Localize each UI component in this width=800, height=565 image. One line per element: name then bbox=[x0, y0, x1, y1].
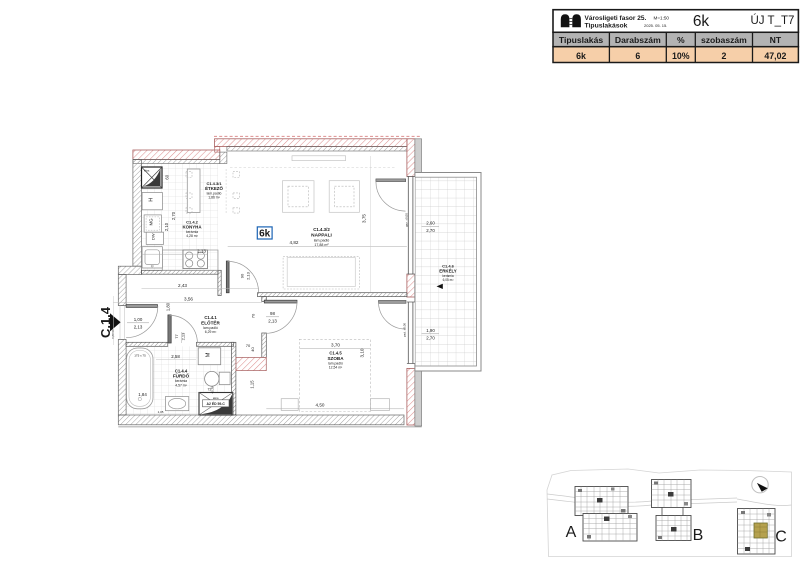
svg-text:4,28 m²: 4,28 m² bbox=[186, 234, 198, 238]
svg-text:2,43: 2,43 bbox=[178, 283, 187, 288]
svg-text:3,10: 3,10 bbox=[360, 348, 365, 357]
svg-text:elsz.: elsz. bbox=[144, 169, 150, 173]
svg-text:gsz. ±0,00: gsz. ±0,00 bbox=[405, 213, 409, 227]
svg-text:40,38: 40,38 bbox=[211, 386, 215, 393]
svg-text:2025. 05. 15.: 2025. 05. 15. bbox=[644, 23, 667, 28]
svg-text:4,82: 4,82 bbox=[290, 240, 299, 245]
svg-text:1,05: 1,05 bbox=[158, 410, 164, 414]
svg-text:175 x 75: 175 x 75 bbox=[134, 354, 146, 358]
svg-text:3,56: 3,56 bbox=[184, 297, 193, 302]
svg-text:6: 6 bbox=[635, 51, 640, 61]
svg-text:1,84: 1,84 bbox=[138, 392, 147, 397]
svg-text:C1.4.3/2: C1.4.3/2 bbox=[313, 227, 330, 232]
svg-text:Darabszám: Darabszám bbox=[615, 35, 661, 45]
svg-text:szobaszám: szobaszám bbox=[701, 35, 747, 45]
svg-text:4,57 m²: 4,57 m² bbox=[175, 383, 187, 387]
svg-text:3,70: 3,70 bbox=[331, 342, 340, 347]
svg-text:2,70: 2,70 bbox=[426, 228, 435, 233]
svg-text:Tipuslakások: Tipuslakások bbox=[585, 23, 628, 30]
svg-text:DW: DW bbox=[151, 233, 156, 240]
svg-text:2,10: 2,10 bbox=[164, 222, 169, 231]
svg-text:12,54 m²: 12,54 m² bbox=[329, 366, 343, 370]
svg-text:Tipuslakás: Tipuslakás bbox=[559, 35, 603, 45]
svg-text:40: 40 bbox=[250, 347, 255, 352]
svg-text:2,70: 2,70 bbox=[171, 211, 176, 220]
svg-text:2,13: 2,13 bbox=[134, 324, 143, 329]
svg-text:M=1:50: M=1:50 bbox=[654, 15, 670, 20]
svg-text:H: H bbox=[149, 198, 155, 202]
svg-text:A: A bbox=[566, 524, 577, 541]
svg-text:ERKÉLY: ERKÉLY bbox=[439, 269, 456, 274]
svg-text:pad. ±0,00: pad. ±0,00 bbox=[403, 323, 407, 337]
svg-text:C: C bbox=[775, 529, 787, 546]
svg-text:C1.4.1: C1.4.1 bbox=[204, 315, 217, 320]
svg-text:2,60: 2,60 bbox=[426, 220, 435, 225]
svg-text:M: M bbox=[206, 352, 212, 357]
svg-text:A2 ÉD 59-C: A2 ÉD 59-C bbox=[207, 401, 226, 406]
svg-text:4,50: 4,50 bbox=[316, 402, 325, 407]
svg-text:3,75: 3,75 bbox=[361, 214, 366, 223]
svg-text:2,13: 2,13 bbox=[181, 332, 186, 341]
svg-text:akna: akna bbox=[213, 396, 219, 400]
svg-text:10%: 10% bbox=[672, 51, 690, 61]
svg-text:MG: MG bbox=[149, 218, 154, 226]
svg-text:6k: 6k bbox=[576, 51, 586, 61]
svg-text:77: 77 bbox=[174, 334, 179, 339]
svg-text:NT: NT bbox=[770, 35, 782, 45]
svg-text:47,02: 47,02 bbox=[764, 51, 786, 61]
svg-text:70: 70 bbox=[246, 343, 251, 348]
svg-text:ÉTKEZŐ: ÉTKEZŐ bbox=[205, 186, 223, 191]
svg-text:6k: 6k bbox=[259, 229, 271, 240]
svg-text:lam.padló: lam.padló bbox=[314, 239, 330, 243]
svg-text:2,70: 2,70 bbox=[426, 335, 435, 340]
svg-text:1,90: 1,90 bbox=[426, 328, 435, 333]
svg-text:ÚJ T_T7: ÚJ T_T7 bbox=[751, 14, 795, 27]
svg-text:SZOBA: SZOBA bbox=[327, 356, 344, 361]
svg-text:2,13: 2,13 bbox=[246, 271, 251, 280]
svg-text:1,15: 1,15 bbox=[250, 380, 255, 389]
svg-text:60: 60 bbox=[165, 174, 170, 179]
svg-text:1,00: 1,00 bbox=[134, 317, 143, 322]
svg-text:2,13: 2,13 bbox=[268, 318, 277, 323]
svg-text:2,58: 2,58 bbox=[171, 354, 180, 359]
svg-text:2: 2 bbox=[721, 51, 726, 61]
svg-text:1,80: 1,80 bbox=[165, 302, 170, 311]
svg-text:1,86 m²: 1,86 m² bbox=[208, 196, 220, 200]
svg-text:C1.4.5: C1.4.5 bbox=[329, 351, 342, 356]
svg-text:Városligeti fasor 25.: Városligeti fasor 25. bbox=[585, 15, 647, 22]
svg-text:0,88 90: 0,88 90 bbox=[111, 329, 115, 339]
svg-text:2,13: 2,13 bbox=[197, 248, 206, 253]
svg-text:6,05 m²: 6,05 m² bbox=[443, 278, 454, 282]
svg-text:ELŐTÉR: ELŐTÉR bbox=[201, 318, 220, 325]
svg-text:FÜRDŐ: FÜRDŐ bbox=[173, 373, 190, 379]
svg-text:6,29 m²: 6,29 m² bbox=[205, 330, 217, 334]
svg-text:98: 98 bbox=[270, 311, 275, 316]
svg-text:%: % bbox=[677, 35, 685, 45]
svg-text:B: B bbox=[693, 527, 704, 544]
svg-text:70: 70 bbox=[251, 313, 256, 318]
svg-text:6k: 6k bbox=[693, 13, 710, 30]
svg-text:KONYHA: KONYHA bbox=[182, 225, 202, 230]
svg-text:90: 90 bbox=[239, 273, 244, 278]
